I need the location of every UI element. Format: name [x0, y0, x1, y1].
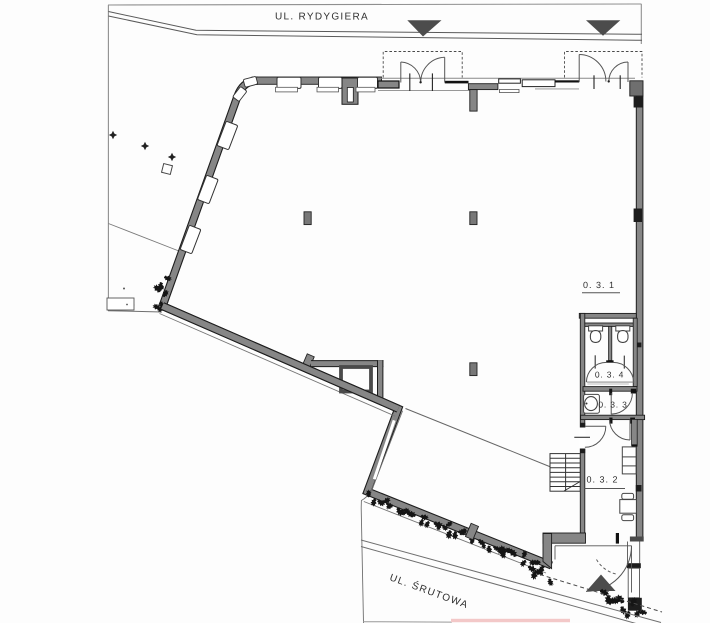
svg-text:0. 3. 4: 0. 3. 4: [595, 369, 624, 379]
svg-text:0. 3. 1: 0. 3. 1: [583, 280, 615, 290]
svg-text:0. 3. 2: 0. 3. 2: [586, 474, 618, 484]
svg-text:0. 3. 3: 0. 3. 3: [598, 399, 627, 409]
svg-text:UL. RYDYGIERA: UL. RYDYGIERA: [275, 11, 369, 22]
